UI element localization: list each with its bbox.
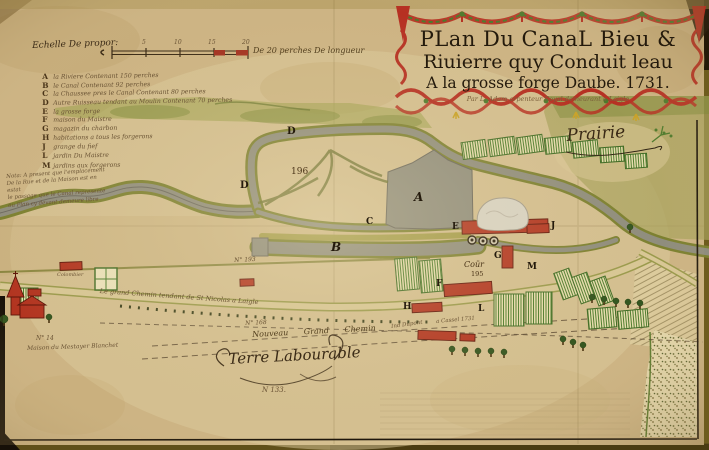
title-byline: Par L. Adam arpenteur Royal demeurant a …	[398, 95, 698, 103]
parcel-196-label: 196	[291, 168, 308, 177]
cour-label: Coür	[464, 261, 484, 269]
title-cartouche: PLan Du CanaL Bieu & Riuierre quy Condui…	[398, 27, 698, 103]
scale-tick-5: 5	[142, 40, 146, 46]
marker-h: H	[403, 303, 412, 312]
marker-g: G	[494, 252, 502, 261]
scale-tick-10: 10	[174, 40, 182, 46]
marker-l: L	[478, 305, 484, 314]
scale-tick-15: 15	[208, 40, 216, 46]
marker-f: F	[436, 280, 442, 289]
legend-key: M	[42, 160, 53, 169]
marker-c: C	[366, 218, 373, 227]
cour-number: 195	[471, 271, 483, 278]
surveyor-note: Nota: A present que l'emplacement De la …	[6, 167, 112, 210]
terre-number: N 133.	[262, 387, 286, 394]
marker-m: M	[527, 263, 537, 272]
marker-e: E	[452, 223, 459, 232]
scale-caption: De 20 perches De longueur	[253, 47, 364, 55]
parcel-193-label: N° 193	[234, 257, 256, 264]
scale-tick-20: 20	[242, 40, 250, 46]
historical-map-screenshot: PLan Du CanaL Bieu & Riuierre quy Condui…	[0, 0, 709, 450]
colombier-label: Colombier	[57, 273, 83, 278]
parcel-14-label: N° 14	[36, 336, 54, 342]
marker-d1: D	[287, 127, 296, 137]
marker-d2: D	[240, 181, 249, 191]
marker-j: J	[551, 222, 555, 231]
title-line-3: A la grosse forge Daube. 1731.	[398, 74, 698, 92]
prairie-label: Prairie	[566, 124, 626, 145]
title-line-2: Riuierre quy Conduit leau	[398, 51, 698, 73]
title-line-1: PLan Du CanaL Bieu &	[398, 27, 698, 51]
marker-a: A	[414, 191, 423, 203]
parcel-168-label: N° 168	[245, 320, 267, 327]
marker-b: B	[331, 241, 341, 253]
